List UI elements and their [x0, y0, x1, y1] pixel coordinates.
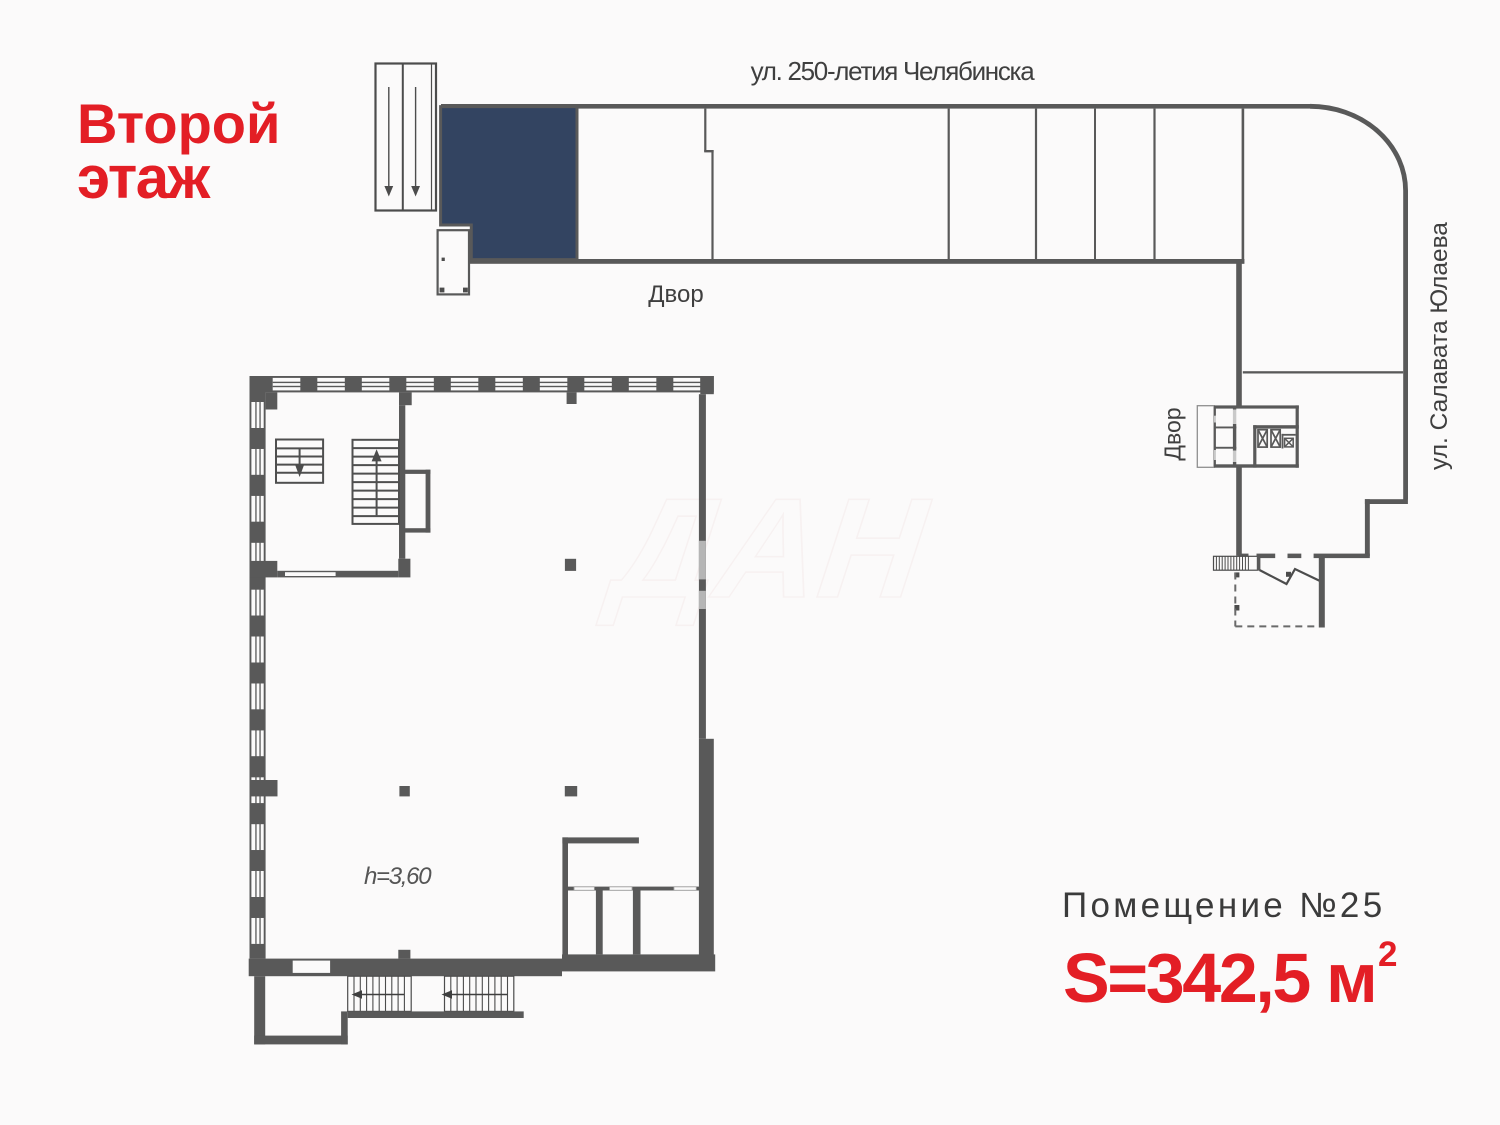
- svg-text:ул. 250-летия Челябинска: ул. 250-летия Челябинска: [751, 56, 1036, 86]
- svg-text:ДАН: ДАН: [594, 468, 952, 627]
- svg-text:этаж: этаж: [77, 144, 212, 211]
- svg-text:Двор: Двор: [648, 281, 703, 308]
- svg-text:Помещение №25: Помещение №25: [1062, 886, 1385, 925]
- svg-text:ул. Салавата Юлаева: ул. Салавата Юлаева: [1426, 222, 1453, 470]
- svg-text:S=342,5 м: S=342,5 м: [1063, 939, 1375, 1017]
- svg-text:2: 2: [1378, 935, 1397, 974]
- svg-text:Двор: Двор: [1160, 407, 1186, 460]
- svg-text:h=3,60: h=3,60: [364, 863, 432, 890]
